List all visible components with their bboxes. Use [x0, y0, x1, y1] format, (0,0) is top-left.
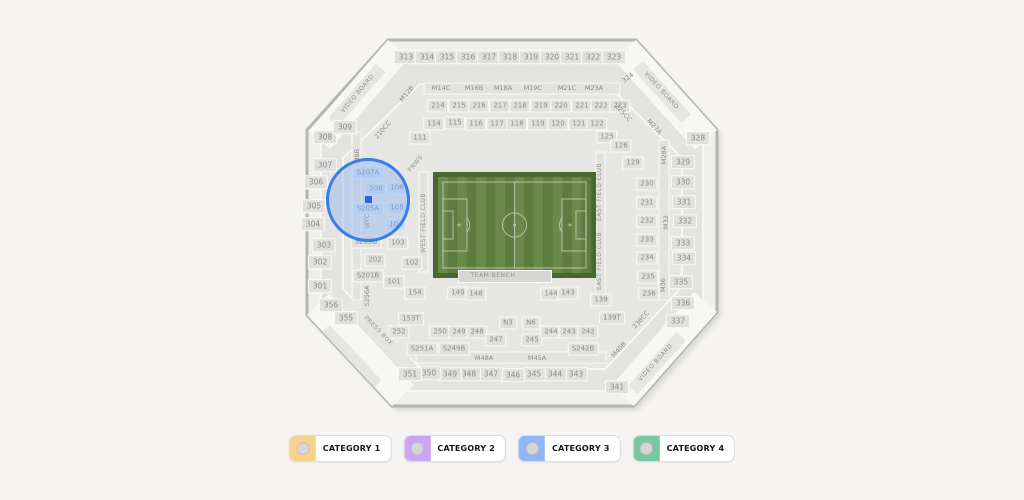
- section-126[interactable]: 126: [610, 140, 631, 153]
- section-305[interactable]: 305: [302, 199, 326, 213]
- section-219[interactable]: 219: [530, 100, 551, 113]
- section-252[interactable]: 252: [388, 326, 409, 339]
- section-218[interactable]: 218: [509, 100, 530, 113]
- section-m23a[interactable]: M23A: [585, 85, 603, 92]
- section-331[interactable]: 331: [672, 195, 696, 209]
- team-bench-label: TEAM BENCH: [471, 273, 516, 279]
- section-323[interactable]: 323: [602, 50, 626, 64]
- section-122[interactable]: 122: [586, 118, 607, 131]
- section-328[interactable]: 328: [686, 131, 710, 145]
- section-337[interactable]: 337: [666, 314, 690, 328]
- section-343[interactable]: 343: [564, 367, 588, 381]
- section-117[interactable]: 117: [486, 118, 507, 131]
- section-238cc[interactable]: 238CC: [631, 310, 650, 330]
- section-335[interactable]: 335: [669, 275, 693, 289]
- category-4-swatch: [634, 436, 660, 461]
- section-324[interactable]: 324: [621, 72, 635, 85]
- section-231[interactable]: 231: [636, 197, 657, 210]
- category-2-swatch: [404, 436, 430, 461]
- section-216[interactable]: 216: [468, 100, 489, 113]
- section-332[interactable]: 332: [673, 214, 697, 228]
- section-236[interactable]: 236: [638, 288, 659, 301]
- section-m12b[interactable]: M12B: [399, 85, 416, 103]
- section-m19c[interactable]: M19C: [524, 85, 542, 92]
- section-s251a[interactable]: S251A: [407, 343, 438, 356]
- section-m27a[interactable]: M27A: [645, 118, 662, 136]
- section-309[interactable]: 309: [333, 120, 357, 134]
- legend: CATEGORY 1 CATEGORY 2 CATEGORY 3 CATEGOR…: [289, 435, 735, 462]
- category-4-dot-icon: [640, 442, 653, 455]
- video-board-label: VIDEO BOARD: [340, 74, 375, 115]
- section-304[interactable]: 304: [301, 217, 325, 231]
- section-330[interactable]: 330: [671, 175, 695, 189]
- section-153t[interactable]: 153T: [398, 313, 424, 326]
- legend-label: CATEGORY 4: [667, 444, 725, 453]
- section-349[interactable]: 349: [438, 367, 462, 381]
- section-233[interactable]: 233: [636, 234, 657, 247]
- west-field-club-label: WEST FIELD CLUB: [421, 193, 427, 253]
- section-235[interactable]: 235: [637, 271, 658, 284]
- section-341[interactable]: 341: [605, 380, 629, 394]
- section-114[interactable]: 114: [423, 118, 444, 131]
- section-120[interactable]: 120: [547, 118, 568, 131]
- section-247[interactable]: 247: [485, 334, 506, 347]
- legend-category-2[interactable]: CATEGORY 2: [403, 435, 506, 462]
- section-102[interactable]: 102: [401, 257, 422, 270]
- section-labels-layer: 3133143153163173183193203213223233243283…: [0, 0, 1024, 500]
- category-1-swatch: [290, 436, 316, 461]
- video-board-label: VIDEO BOARD: [643, 71, 680, 111]
- category-3-swatch: [519, 436, 545, 461]
- section-m21c[interactable]: M21C: [558, 85, 576, 92]
- section-m48a[interactable]: M48A: [475, 355, 493, 362]
- section-329[interactable]: 329: [671, 155, 695, 169]
- section-119[interactable]: 119: [527, 118, 548, 131]
- section-115[interactable]: 115: [444, 117, 465, 130]
- section-m16b[interactable]: M16B: [465, 85, 483, 92]
- seat-map-page: 3133143153163173183193203213223233243283…: [0, 0, 1024, 500]
- section-202[interactable]: 202: [364, 254, 385, 267]
- legend-category-1[interactable]: CATEGORY 1: [289, 435, 392, 462]
- section-307[interactable]: 307: [313, 158, 337, 172]
- section-118[interactable]: 118: [506, 118, 527, 131]
- section-154[interactable]: 154: [404, 287, 425, 300]
- section-333[interactable]: 333: [671, 236, 695, 250]
- section-m36[interactable]: M36: [660, 278, 667, 292]
- section-355[interactable]: 355: [334, 311, 358, 325]
- section-m18a[interactable]: M18A: [494, 85, 512, 92]
- section-232[interactable]: 232: [636, 215, 657, 228]
- section-m40b[interactable]: M40B: [610, 341, 627, 359]
- section-116[interactable]: 116: [465, 118, 486, 131]
- section-s242b[interactable]: S242B: [568, 343, 599, 356]
- section-346[interactable]: 346: [501, 368, 525, 382]
- section-334[interactable]: 334: [672, 251, 696, 265]
- legend-category-4[interactable]: CATEGORY 4: [633, 435, 736, 462]
- video-board-label: VIDEO BOARD: [638, 343, 675, 383]
- legend-label: CATEGORY 1: [323, 444, 381, 453]
- legend-label: CATEGORY 3: [552, 444, 610, 453]
- section-148[interactable]: 148: [465, 288, 486, 301]
- category-1-dot-icon: [296, 442, 309, 455]
- section-303[interactable]: 303: [312, 238, 336, 252]
- selected-seat-marker[interactable]: [365, 196, 372, 203]
- section-301[interactable]: 301: [308, 279, 332, 293]
- section-143[interactable]: 143: [557, 287, 578, 300]
- section-101[interactable]: 101: [383, 276, 404, 289]
- section-n6[interactable]: N6: [522, 317, 540, 330]
- section-m28a[interactable]: M28A: [661, 146, 668, 164]
- section-s201b[interactable]: S201B: [353, 270, 384, 283]
- section-347[interactable]: 347: [479, 367, 503, 381]
- legend-label: CATEGORY 2: [437, 444, 495, 453]
- section-m45a[interactable]: M45A: [528, 355, 546, 362]
- category-3-dot-icon: [526, 442, 539, 455]
- section-302[interactable]: 302: [308, 255, 332, 269]
- east-field-club-label: EAST FIELD CLUB: [597, 163, 603, 221]
- category-2-dot-icon: [411, 442, 424, 455]
- east-field-club-label: EAST FIELD CLUB: [597, 232, 603, 290]
- section-103[interactable]: 103: [387, 237, 408, 250]
- section-210cc[interactable]: 210CC: [374, 120, 393, 141]
- section-129[interactable]: 129: [622, 157, 643, 170]
- section-217[interactable]: 217: [489, 100, 510, 113]
- section-230[interactable]: 230: [636, 178, 657, 191]
- section-336[interactable]: 336: [671, 296, 695, 310]
- section-234[interactable]: 234: [636, 252, 657, 265]
- section-356[interactable]: 356: [319, 298, 343, 312]
- legend-category-3[interactable]: CATEGORY 3: [518, 435, 621, 462]
- section-306[interactable]: 306: [304, 175, 328, 189]
- section-242[interactable]: 242: [577, 326, 598, 339]
- section-344[interactable]: 344: [543, 367, 567, 381]
- section-139[interactable]: 139: [590, 294, 611, 307]
- section-351[interactable]: 351: [398, 367, 422, 381]
- section-215[interactable]: 215: [448, 100, 469, 113]
- section-345[interactable]: 345: [522, 367, 546, 381]
- section-139t[interactable]: 139T: [599, 312, 625, 325]
- section-s256a[interactable]: S256A: [364, 286, 371, 307]
- section-111[interactable]: 111: [409, 132, 430, 145]
- section-s249b[interactable]: S249B: [439, 343, 470, 356]
- section-n3[interactable]: N3: [499, 317, 517, 330]
- section-214[interactable]: 214: [427, 100, 448, 113]
- section-220[interactable]: 220: [550, 100, 571, 113]
- section-m32[interactable]: M32: [663, 215, 670, 229]
- fnws-label: FNWS: [407, 155, 424, 174]
- section-m14c[interactable]: M14C: [432, 85, 450, 92]
